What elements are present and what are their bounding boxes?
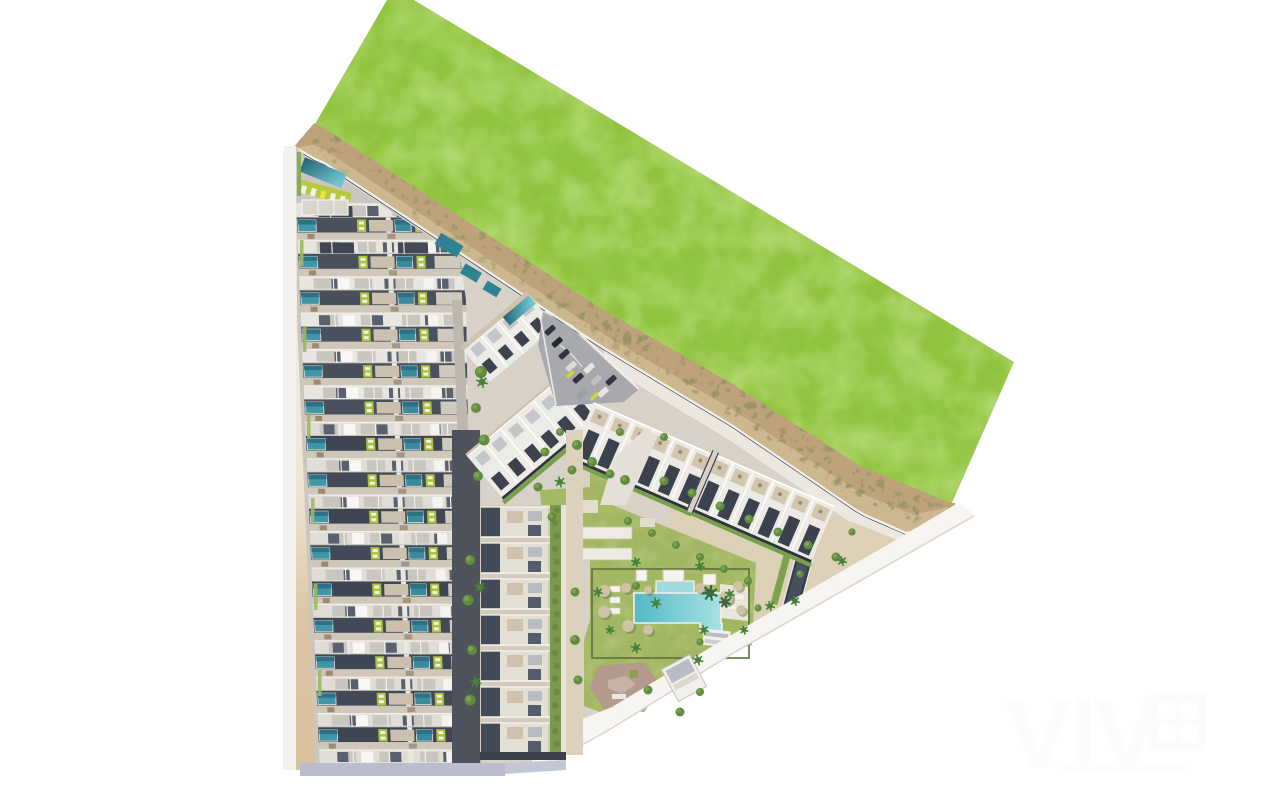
svg-text:VIV: VIV [1005,678,1160,790]
